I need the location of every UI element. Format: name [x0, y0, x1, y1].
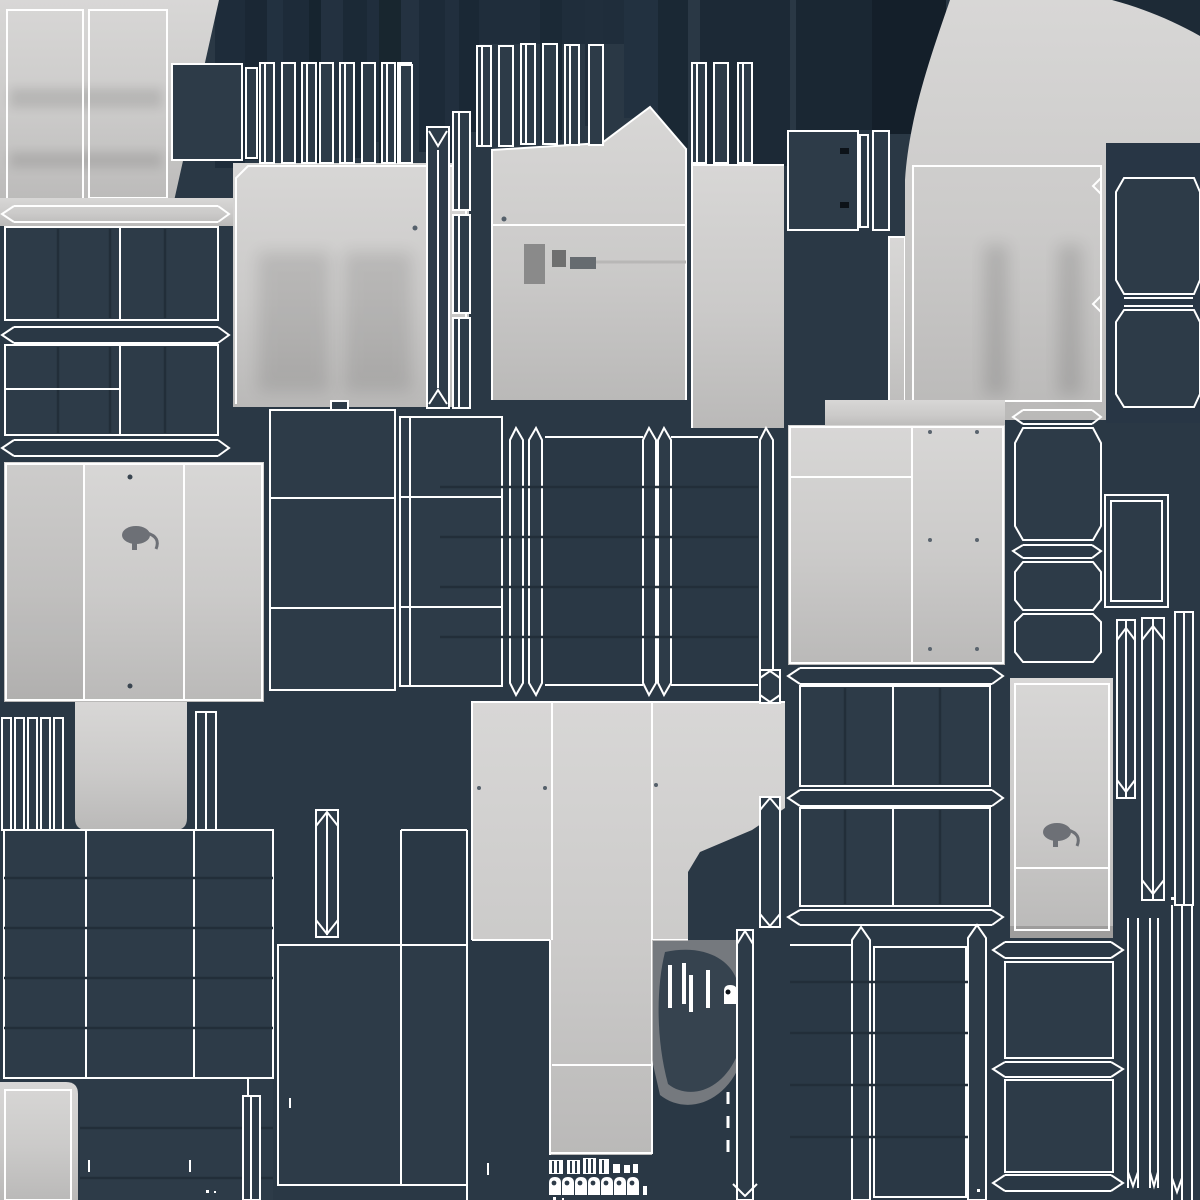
black-fastener-mark [840, 148, 849, 154]
beveled-boxes-mid-right [1013, 410, 1101, 662]
island-bottom-left-panel [0, 1082, 78, 1200]
screw-dot [502, 217, 507, 222]
island-back-panel-right [788, 400, 1005, 665]
beveled-boxes-far-right [1106, 143, 1200, 423]
slat-group-left-small [2, 718, 63, 830]
black-fastener-mark [840, 202, 849, 208]
slat-group-c [692, 63, 752, 163]
island-drawer-face-right [1010, 678, 1113, 938]
hardware-box-uv [788, 131, 889, 230]
uv-texture-atlas [0, 0, 1200, 1200]
island-left-drawer-grids [0, 198, 238, 456]
screw-dot [413, 226, 418, 231]
island-thin-strip [889, 237, 905, 427]
keyhole-lock-plate [724, 985, 737, 1004]
island-tab [75, 702, 187, 830]
small-box-uv [172, 64, 242, 160]
island-arched-front-panel [492, 107, 686, 400]
striped-vent-chips [549, 1158, 609, 1174]
island-narrow-panel [692, 165, 784, 428]
atlas-canvas [0, 0, 1200, 1200]
